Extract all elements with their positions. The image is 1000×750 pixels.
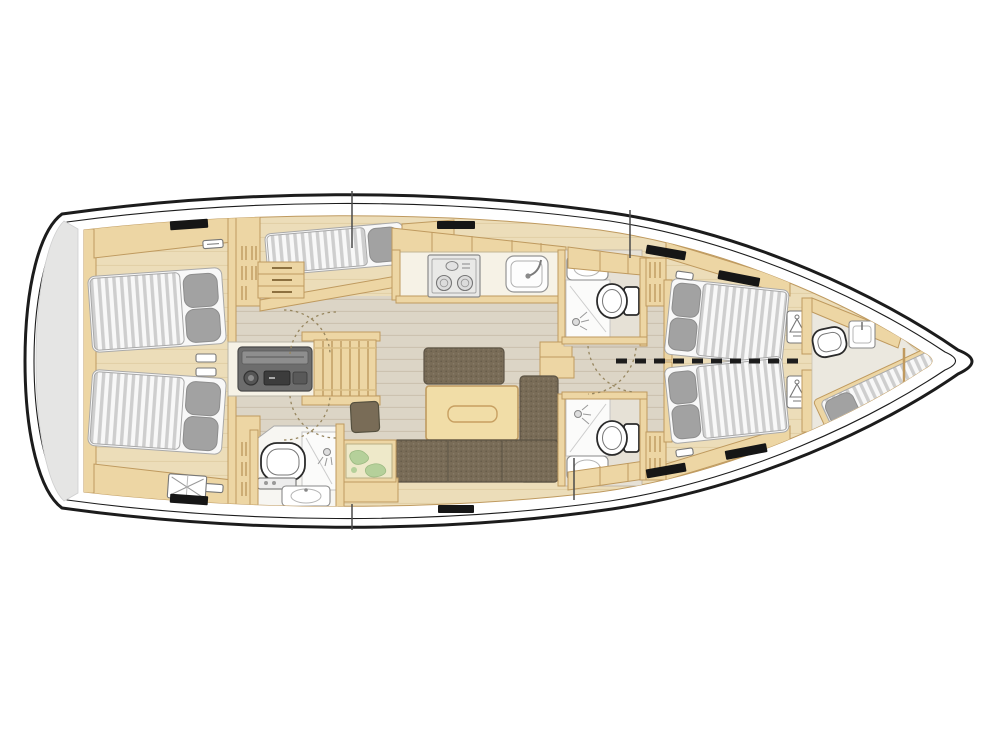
pillow	[671, 404, 701, 440]
stove	[428, 255, 480, 297]
forward-cabin-bottom	[664, 356, 789, 444]
sofa-side-shelf	[540, 357, 574, 378]
stern-bulkhead-strip	[82, 229, 96, 493]
deck-hatch	[437, 221, 475, 229]
galley-counter-edge	[396, 296, 566, 303]
pillow	[671, 282, 701, 318]
salon-table	[426, 386, 518, 440]
companionway	[228, 332, 380, 405]
pillow	[185, 308, 221, 343]
pillow	[185, 381, 221, 416]
bathroom-sink	[282, 486, 330, 506]
bow-bulkhead-top	[802, 298, 812, 354]
aft-head	[250, 424, 344, 508]
pillow	[182, 416, 218, 451]
aft-bulkhead-bottom	[228, 380, 236, 510]
head-forward-top	[558, 247, 652, 346]
pillow	[668, 370, 698, 405]
crew-sink	[849, 321, 875, 348]
pillow	[183, 273, 219, 308]
deck-hatch	[438, 505, 474, 513]
sofa-bottom	[393, 440, 558, 482]
pillow	[668, 317, 698, 352]
companionway-steps	[314, 340, 376, 398]
yacht-floor-plan-page	[0, 0, 1000, 750]
settee	[424, 348, 504, 384]
toilet	[597, 421, 639, 455]
stool	[350, 401, 380, 432]
wardrobe-louver-top	[646, 258, 666, 306]
yacht-floor-plan	[0, 0, 1000, 750]
hatch-latch	[196, 354, 216, 362]
toilet	[597, 284, 639, 318]
forward-cabin-top	[664, 278, 789, 366]
aft-bulkhead-top	[228, 212, 236, 342]
nav-chart-table	[342, 440, 396, 482]
head-forward-bottom	[558, 392, 652, 490]
bow-bulkhead-bottom	[802, 370, 812, 432]
hatch-latch	[196, 368, 216, 376]
galley-sink	[506, 256, 548, 292]
engine-box	[238, 347, 312, 391]
